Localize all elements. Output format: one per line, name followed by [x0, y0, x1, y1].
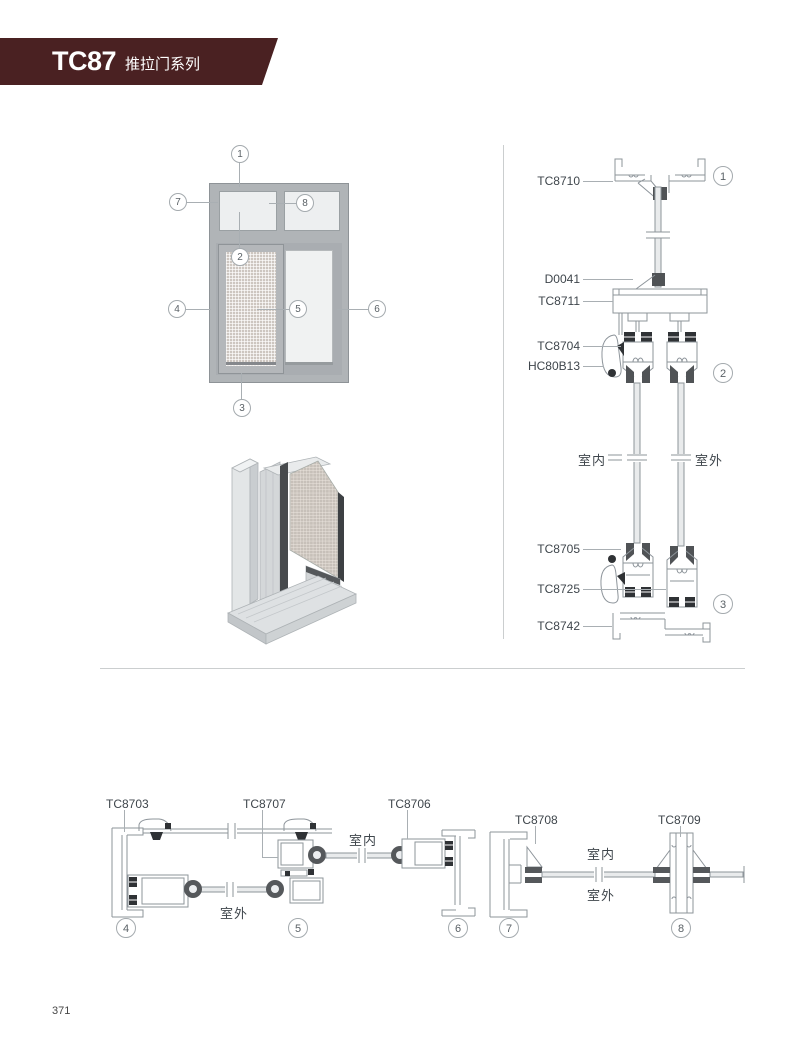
- callout-3: 3: [233, 399, 251, 417]
- callout-2: 2: [713, 363, 733, 383]
- callout-1: 1: [231, 145, 249, 163]
- interlock-tc8725: [601, 555, 625, 603]
- outdoor-label: 室外: [695, 450, 723, 469]
- mesh-edge: [338, 492, 344, 582]
- leader-line: [239, 163, 240, 187]
- callout-6: 6: [448, 918, 468, 938]
- outdoor-label: 室外: [587, 885, 615, 904]
- part-label-tc8708: TC8708: [515, 813, 558, 827]
- mesh-panel: [290, 461, 338, 578]
- vertical-divider: [503, 145, 504, 639]
- part-label-tc8703: TC8703: [106, 797, 149, 811]
- glass-panel-shadow: [285, 362, 333, 365]
- leader-line: [583, 626, 612, 627]
- leader-line: [535, 826, 536, 844]
- profile-tc8709: [653, 833, 710, 913]
- profile-tc8707: [278, 840, 326, 903]
- series-code: TC87: [52, 48, 116, 75]
- leader-line: [337, 309, 368, 310]
- callout-6: 6: [368, 300, 386, 318]
- leader-line: [186, 309, 211, 310]
- transom-glass: [636, 187, 670, 292]
- part-label-hc80b13: HC80B13: [500, 359, 580, 373]
- leader-line: [583, 549, 621, 550]
- part-label-tc8711: TC8711: [500, 294, 580, 308]
- leader-line: [239, 212, 240, 248]
- profile-tc8711: [613, 289, 707, 332]
- leader-line: [583, 181, 613, 182]
- glass-run-middle: [326, 848, 397, 863]
- part-label-tc8707: TC8707: [243, 797, 286, 811]
- indoor-label: 室内: [578, 450, 606, 469]
- horizontal-divider: [100, 668, 745, 669]
- profile-tc8742: [613, 613, 710, 642]
- indoor-label: 室内: [349, 830, 377, 849]
- leader-line: [257, 309, 289, 310]
- series-banner: TC87 推拉门系列: [0, 38, 278, 85]
- leader-line: [583, 279, 633, 280]
- part-label-tc8725: TC8725: [500, 582, 580, 596]
- callout-4: 4: [116, 918, 136, 938]
- callout-2: 2: [231, 248, 249, 266]
- horizontal-section-drawing: [95, 795, 755, 935]
- part-label-tc8709: TC8709: [658, 813, 701, 827]
- leader-line: [407, 810, 408, 839]
- part-label-tc8742: TC8742: [500, 619, 580, 633]
- transom-pane-left: [219, 191, 277, 231]
- leader-line: [124, 810, 125, 832]
- glazing-channel: [280, 462, 288, 594]
- catalog-page: TC87 推拉门系列 1 7 8 2 4 5 6 3: [0, 0, 800, 1041]
- indoor-label: 室内: [587, 844, 615, 863]
- part-label-tc8706: TC8706: [388, 797, 431, 811]
- part-label-tc8710: TC8710: [500, 174, 580, 188]
- leader-line: [262, 857, 278, 858]
- callout-1: 1: [713, 166, 733, 186]
- sash-profile-outer: [667, 332, 697, 383]
- callout-4: 4: [168, 300, 186, 318]
- profile-tc8708: [490, 832, 542, 917]
- leader-line: [269, 203, 296, 204]
- callout-8: 8: [296, 194, 314, 212]
- callout-8: 8: [671, 918, 691, 938]
- callout-5: 5: [288, 918, 308, 938]
- part-label-tc8705: TC8705: [500, 542, 580, 556]
- vertical-section-drawing: [505, 145, 755, 645]
- sash-box-left: [128, 875, 188, 907]
- frame-member: [260, 462, 280, 608]
- leader-line: [680, 826, 681, 837]
- lock-hc80b13: [602, 313, 624, 377]
- profile-tc8706: [391, 839, 453, 868]
- leader-line: [583, 366, 604, 367]
- leader-line: [262, 810, 263, 857]
- sash-bottom-rail: [226, 362, 276, 365]
- isometric-render: [220, 448, 375, 653]
- sash-profile-outer-bottom: [667, 546, 697, 607]
- leader-line: [583, 346, 621, 347]
- glass-columns: [608, 383, 691, 546]
- outdoor-label: 室外: [220, 903, 248, 922]
- series-name: 推拉门系列: [125, 53, 200, 74]
- callout-5: 5: [289, 300, 307, 318]
- leader-line: [241, 373, 242, 399]
- page-number: 371: [52, 1005, 70, 1017]
- jamb-side: [250, 459, 258, 604]
- glass-run-right: [542, 866, 744, 883]
- leader-line: [583, 589, 666, 590]
- part-label-d0041: D0041: [500, 272, 580, 286]
- callout-7: 7: [169, 193, 187, 211]
- jamb-face: [232, 459, 250, 616]
- callout-3: 3: [713, 594, 733, 614]
- profile-tc8704: [623, 332, 653, 383]
- part-label-tc8704: TC8704: [500, 339, 580, 353]
- leader-line: [187, 202, 218, 203]
- glass-run-lower: [184, 880, 284, 898]
- callout-7: 7: [499, 918, 519, 938]
- leader-line: [583, 301, 613, 302]
